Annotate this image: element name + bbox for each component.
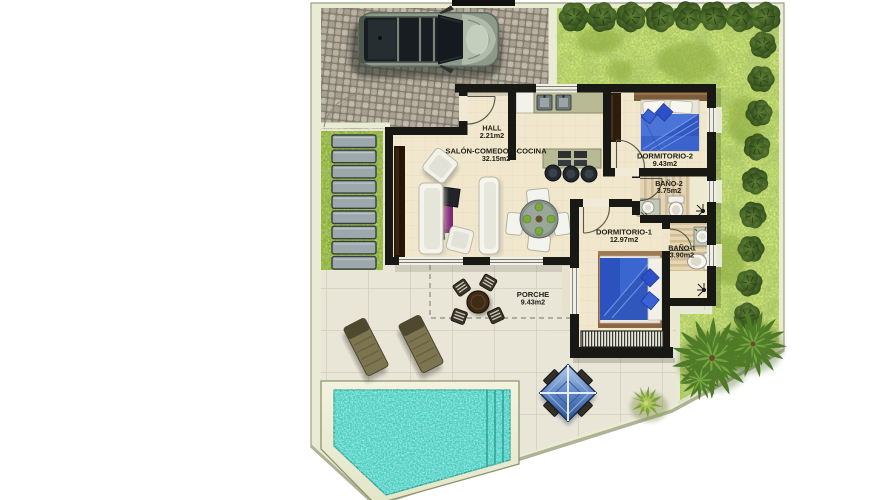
svg-text:3.90m2: 3.90m2 bbox=[670, 251, 694, 260]
svg-text:9.43m2: 9.43m2 bbox=[653, 159, 677, 168]
svg-text:3.75m2: 3.75m2 bbox=[657, 186, 681, 195]
svg-text:12.97m2: 12.97m2 bbox=[610, 235, 638, 244]
svg-text:9.43m2: 9.43m2 bbox=[521, 298, 545, 307]
svg-text:32.15m2: 32.15m2 bbox=[482, 154, 510, 163]
svg-text:2.21m2: 2.21m2 bbox=[480, 131, 504, 140]
